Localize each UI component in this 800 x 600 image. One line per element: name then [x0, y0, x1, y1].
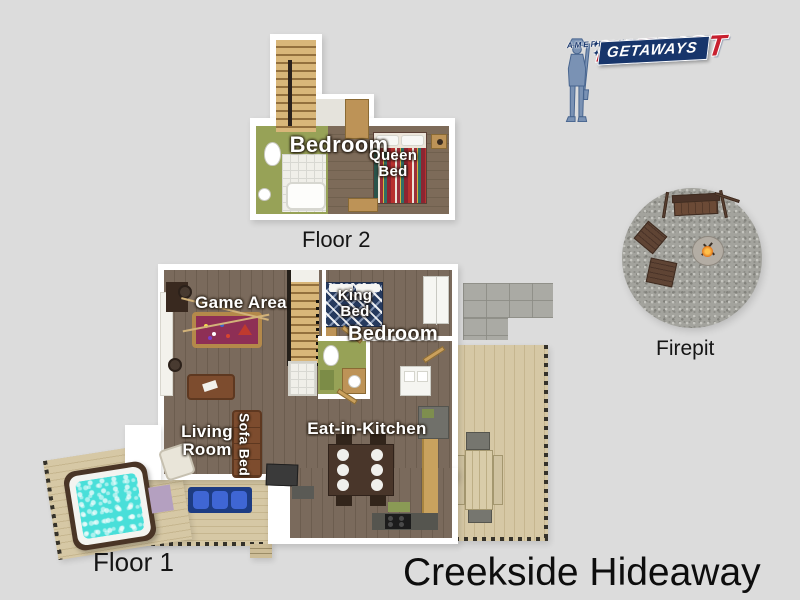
patriot-getaways-logo: ✦ ✦ AMERICAN ✦ ✦ PATRIOT GETAWAYS [560, 30, 736, 138]
hot-tub-water [75, 473, 145, 540]
floor1-staircase [287, 270, 319, 366]
porch-bench [188, 487, 252, 513]
living-room-label: Living Room [166, 423, 248, 459]
dresser [348, 198, 378, 212]
picnic-bench [493, 455, 503, 505]
burner [399, 522, 404, 527]
fire-ring [692, 236, 724, 266]
floor1-plan: Game Area King Bed Bedroom Living Room S… [40, 258, 560, 558]
wardrobe [423, 276, 449, 324]
stair-landing [287, 270, 319, 282]
bar-stool [178, 285, 192, 299]
kitchen-mat [388, 502, 410, 512]
bench-cushion [231, 491, 247, 509]
picnic-table [465, 450, 493, 510]
dining-table [328, 444, 394, 496]
bench-cushion [193, 491, 209, 509]
plate [337, 464, 349, 476]
nightstand [431, 134, 447, 149]
side-deck [455, 345, 548, 541]
interior-wall [366, 340, 370, 398]
deck-railing [455, 537, 548, 541]
remote [202, 380, 218, 392]
deck-chair [466, 432, 490, 450]
wardrobe-door-seam [436, 277, 437, 325]
bench-cushion [212, 491, 228, 509]
fire-glow [702, 246, 713, 257]
lamp [437, 139, 443, 145]
vacation-rental-floorplan: Bedroom Queen Bed Floor 2 ✦ ✦ AMERICAN ✦… [0, 0, 800, 600]
tv [266, 463, 299, 486]
dining-chair [370, 495, 386, 506]
bathtub [286, 182, 326, 210]
hot-tub [62, 460, 157, 552]
floor1-bedroom-label: Bedroom [347, 324, 439, 345]
pillow [401, 135, 424, 146]
firepit-caption: Firepit [656, 337, 714, 361]
property-title: Creekside Hideaway [403, 551, 761, 595]
burner [399, 516, 404, 521]
stone-patio [463, 283, 553, 318]
floor2-staircase [276, 40, 316, 132]
floor2-plan: Bedroom Queen Bed [245, 32, 457, 224]
firepit-area [622, 188, 762, 328]
bathroom-sink [258, 188, 271, 201]
washer [404, 371, 415, 382]
deck-railing [544, 345, 548, 541]
toilet [264, 142, 281, 166]
interior-wall [322, 270, 326, 340]
king-bed-label: King Bed [333, 288, 377, 320]
pool-ball [226, 334, 230, 338]
plate [371, 449, 383, 461]
bathroom-sink [348, 375, 361, 388]
sofa-bed-label: Sofa Bed [237, 410, 252, 480]
bathroom-vanity [342, 368, 366, 394]
door-mat [292, 486, 314, 499]
plate [371, 464, 383, 476]
stair-railing [288, 60, 292, 126]
floor2-queen-bed-label: Queen Bed [369, 148, 417, 180]
floor2-caption: Floor 2 [302, 227, 370, 253]
toilet [323, 345, 339, 366]
floor1-caption: Floor 1 [93, 547, 174, 578]
floor1-bathroom [318, 340, 368, 396]
stone-patio [463, 318, 508, 340]
shower [288, 361, 317, 396]
pool-ball [212, 332, 216, 336]
dryer [417, 371, 428, 382]
deck-steps [250, 544, 272, 558]
stair-railing [287, 270, 291, 366]
stove [385, 514, 411, 529]
plate [337, 479, 349, 491]
kitchen-counter [422, 438, 438, 516]
counter-item [422, 409, 434, 418]
logo-text-block: ✦ ✦ AMERICAN ✦ ✦ PATRIOT GETAWAYS [596, 32, 734, 39]
utility-closet [400, 366, 431, 396]
patriot-figure-icon [560, 36, 594, 136]
bar-stool [168, 358, 182, 372]
swing-bench [674, 200, 719, 216]
bath-mat [320, 370, 334, 390]
game-area-label: Game Area [195, 294, 287, 312]
burner [388, 522, 393, 527]
burner [388, 516, 393, 521]
pool-ball [208, 336, 212, 340]
ball-rack [238, 324, 252, 335]
eat-in-kitchen-label: Eat-in-Kitchen [296, 420, 438, 438]
plate [371, 479, 383, 491]
firepit-chair [646, 257, 678, 287]
deck-mat [148, 484, 174, 513]
deck-railing [43, 461, 63, 560]
dining-chair [336, 495, 352, 506]
plate [337, 449, 349, 461]
loveseat [187, 374, 235, 400]
